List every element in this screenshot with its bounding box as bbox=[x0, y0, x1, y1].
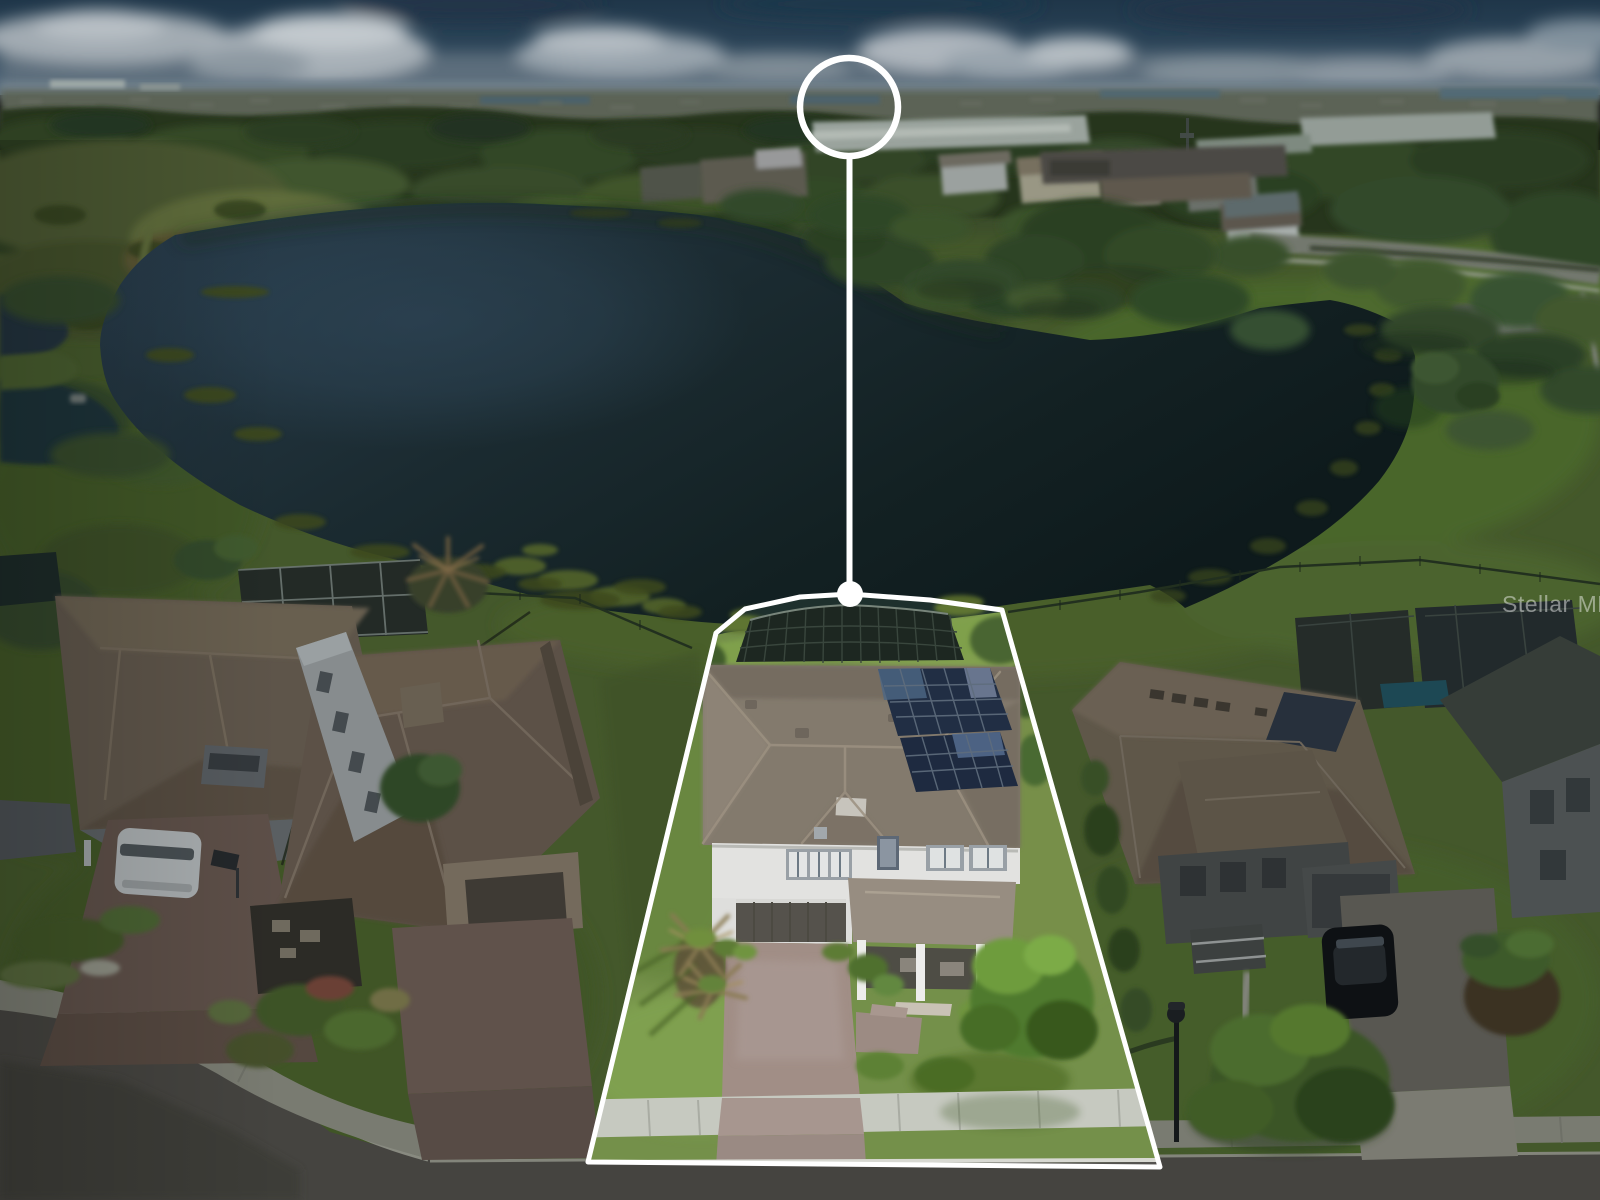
svg-text:Stellar MLS: Stellar MLS bbox=[1502, 591, 1600, 617]
